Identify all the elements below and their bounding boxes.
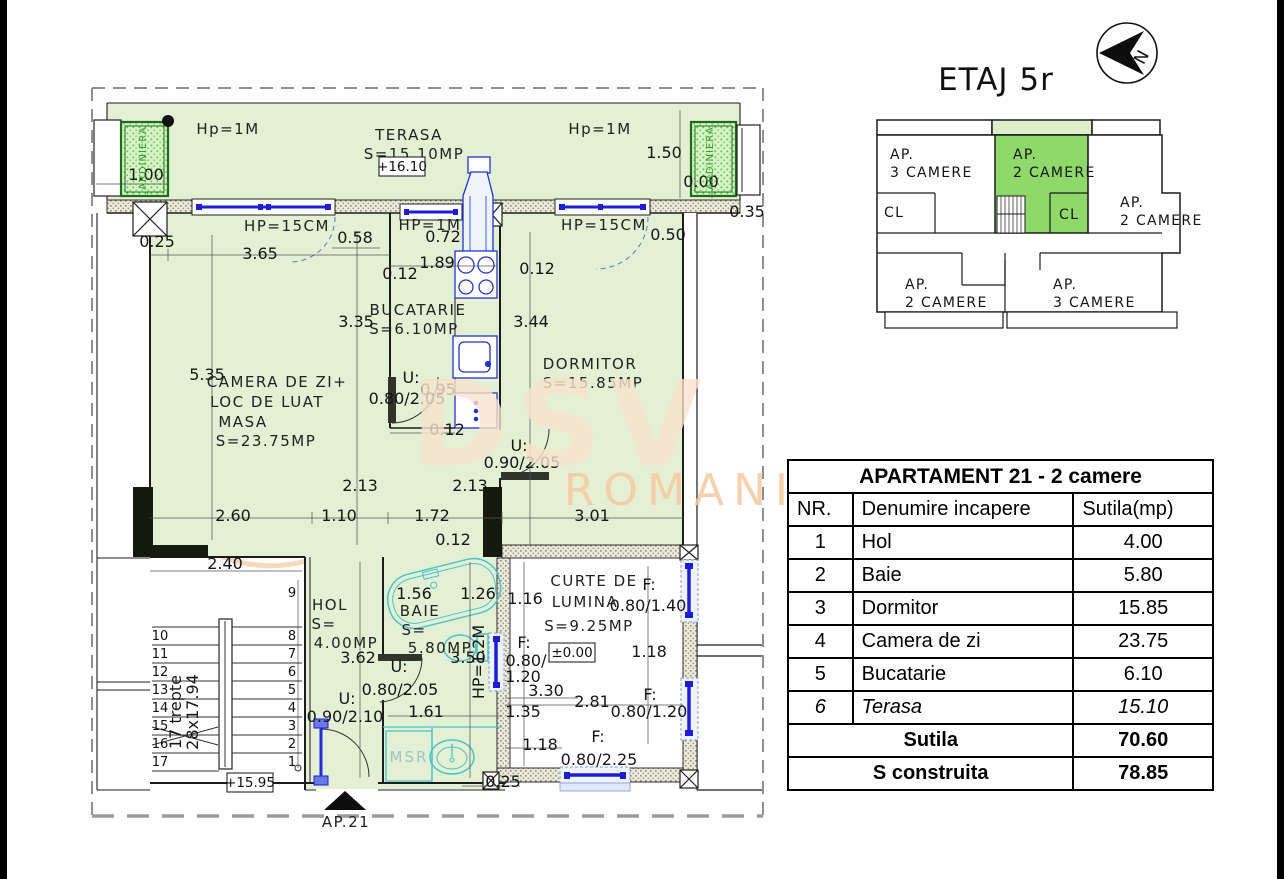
plan-annotation: 2.60: [215, 506, 251, 525]
table-cell: 3: [788, 592, 853, 625]
plan-annotation: U:: [390, 657, 407, 676]
plan-annotation: S=: [401, 621, 426, 639]
key-plan-label: 3 CAMERE: [1053, 295, 1136, 311]
plan-annotation: 2.81: [574, 692, 610, 711]
plan-annotation: AP.21: [322, 813, 370, 831]
stair-step-number: 6: [288, 665, 296, 680]
table-cell: 4.00: [1073, 526, 1213, 559]
table-cell: 6.10: [1073, 658, 1213, 691]
window-bath-lightwell: [489, 633, 504, 691]
table-summary-row: Sutila70.60: [788, 724, 1213, 757]
plan-annotation: HOL: [312, 596, 348, 614]
key-plan-label: 2 CAMERE: [905, 295, 988, 311]
plan-annotation: 0.80/1.20: [611, 702, 688, 721]
key-plan-label: 2 CAMERE: [1120, 213, 1203, 229]
table-row: 4Camera de zi23.75: [788, 625, 1213, 658]
window-lightwell-bottom: [560, 767, 630, 791]
plan-annotation: 0.80/1.40: [610, 596, 687, 615]
plan-annotation: F:: [591, 727, 604, 746]
col-header-area: Sutila(mp): [1073, 493, 1213, 526]
vent-shaft: [463, 157, 493, 252]
table-row: 6Terasa15.10: [788, 691, 1213, 724]
table-cell: 70.60: [1073, 724, 1213, 757]
plan-annotation: 1.72: [414, 506, 450, 525]
stair-step-number: 4: [288, 701, 296, 716]
table-cell: 6: [788, 691, 853, 724]
stair-step-number: 12: [152, 665, 169, 680]
left-edge-bar: [0, 0, 7, 879]
col-header-name: Denumire incapere: [853, 493, 1074, 526]
right-edge-bar: [1277, 0, 1284, 879]
plan-annotation: 1.16: [507, 589, 543, 608]
key-plan-label: AP.: [1053, 277, 1077, 293]
plan-annotation: CAMERA DE ZI+: [207, 373, 348, 391]
entrance-arrow: [324, 791, 366, 810]
stair-step-number: 14: [152, 701, 169, 716]
table-cell: 23.75: [1073, 625, 1213, 658]
table-cell: Baie: [853, 559, 1074, 592]
table-row: 1Hol4.00: [788, 526, 1213, 559]
key-plan-label: AP.: [1120, 195, 1144, 211]
plan-annotation: 0.50: [650, 225, 686, 244]
stair-step-number: 11: [152, 647, 169, 662]
key-plan-label: AP.: [890, 147, 914, 163]
table-title: APARTAMENT 21 - 2 camere: [788, 460, 1213, 493]
north-arrow-icon: N: [1097, 23, 1157, 83]
table-cell: Camera de zi: [853, 625, 1074, 658]
table-cell: Sutila: [788, 724, 1073, 757]
table-cell: 15.85: [1073, 592, 1213, 625]
plan-annotation: 0.58: [337, 228, 373, 247]
plan-annotation: 0.90/2.10: [307, 707, 384, 726]
plan-annotation: TERASA: [374, 126, 443, 144]
plan-annotation: 0.80/2.25: [561, 750, 638, 769]
plan-annotation: 28x17.94: [183, 674, 202, 750]
plan-annotation: 0.80/2.05: [362, 680, 439, 699]
plan-annotation: 1.50: [646, 143, 682, 162]
table-summary-row: S construita78.85: [788, 757, 1213, 790]
plan-annotation: Hp=1M: [196, 120, 259, 138]
plan-annotation: JARDINIERA: [705, 126, 716, 194]
stair-step-number: 10: [152, 629, 169, 644]
stair-step-number: 2: [288, 737, 296, 752]
table-cell: Bucatarie: [853, 658, 1074, 691]
plan-annotation: S=: [311, 615, 336, 633]
table-cell: Dormitor: [853, 592, 1074, 625]
table-cell: 2: [788, 559, 853, 592]
level-value: +15.95: [225, 775, 275, 791]
stove: [455, 251, 497, 298]
plan-annotation: MASA: [218, 413, 267, 431]
bath-sink: [430, 740, 474, 774]
stair-step-number: 5: [288, 683, 296, 698]
table-row: 5Bucatarie6.10: [788, 658, 1213, 691]
plan-annotation: 2.13: [342, 476, 378, 495]
key-plan-terrace-strip: [992, 120, 1092, 135]
stair-step-number: 13: [152, 683, 169, 698]
key-plan-label: AP.: [905, 277, 929, 293]
stair-step-number: 8: [288, 629, 296, 644]
table-header-row: NR. Denumire incapere Sutila(mp): [788, 493, 1213, 526]
plan-annotation: F:: [517, 633, 530, 652]
key-plan-stairs: [997, 196, 1025, 233]
key-plan-label: CL: [884, 205, 904, 221]
table-cell: Hol: [853, 526, 1074, 559]
plan-annotation: 1.26: [460, 584, 496, 603]
plan-annotation: 1.35: [505, 702, 541, 721]
table-cell: S construita: [788, 757, 1073, 790]
plan-annotation: LOC DE LUAT: [210, 393, 324, 411]
table-row: 2Baie5.80: [788, 559, 1213, 592]
col-header-nr: NR.: [788, 493, 853, 526]
plan-annotation: U:: [338, 689, 355, 708]
plan-annotation: F:: [642, 575, 655, 594]
area-table: APARTAMENT 21 - 2 camere NR. Denumire in…: [787, 459, 1214, 791]
plan-annotation: 3.62: [340, 648, 376, 667]
plan-annotation: 0.12: [435, 530, 471, 549]
plan-annotation: 3.30: [528, 681, 564, 700]
plan-annotation: HP=15CM: [244, 217, 330, 235]
level-value: +16.10: [377, 159, 427, 175]
table-cell: 5: [788, 658, 853, 691]
key-plan-label: CL: [1059, 207, 1079, 223]
plan-annotation: 1.89: [419, 253, 455, 272]
plan-annotation: 1.18: [631, 642, 667, 661]
plan-annotation: JARDINIERA: [138, 126, 149, 194]
plan-annotation: 3.44: [513, 312, 549, 331]
key-plan-label: 3 CAMERE: [890, 165, 973, 181]
plan-annotation: HP=1.2M: [469, 625, 488, 699]
stair-step-number: 16: [152, 737, 169, 752]
floor-title: ETAJ 5r: [938, 62, 1054, 98]
plan-annotation: 1.56: [396, 584, 432, 603]
plan-annotation: 1.10: [321, 506, 357, 525]
table-cell: 4: [788, 625, 853, 658]
table-cell: 1: [788, 526, 853, 559]
stair-step-number: 15: [152, 719, 169, 734]
plan-annotation: 0.12: [519, 259, 555, 278]
plan-annotation: CURTE DE: [550, 572, 637, 590]
plan-annotation: 0.25: [485, 772, 521, 791]
table-cell: 78.85: [1073, 757, 1213, 790]
level-value: ±0.00: [551, 645, 592, 661]
plan-annotation: 0.25: [139, 232, 175, 251]
stair-step-number: 7: [288, 647, 296, 662]
plan-annotation: 1.18: [522, 735, 558, 754]
plan-annotation: S=6.10MP: [369, 320, 458, 338]
plan-annotation: 1.61: [408, 702, 444, 721]
plan-annotation: 0.35: [729, 202, 765, 221]
plan-annotation: 3.65: [242, 244, 278, 263]
floor-plan-sheet: N ETAJ 5r Hp=1MTERASAS=15.10MPHp=1M1.001…: [0, 0, 1284, 879]
plan-annotation: S=9.25MP: [544, 617, 633, 635]
stair-step-number: 3: [288, 719, 296, 734]
plan-annotation: S=23.75MP: [216, 432, 317, 450]
plan-annotation: 0.12: [382, 264, 418, 283]
plan-annotation: MSR: [390, 748, 429, 766]
stair-step-number: 17: [152, 755, 169, 770]
key-plan-label: 2 CAMERE: [1013, 165, 1096, 181]
plan-annotation: 3.35: [338, 312, 374, 331]
plan-annotation: BAIE: [400, 602, 440, 620]
plan-annotation: 2.40: [207, 554, 243, 573]
plan-annotation: LUMINA: [552, 593, 618, 611]
plan-annotation: BUCATARIE: [370, 301, 467, 319]
plan-annotation: HP=15CM: [561, 216, 647, 234]
stair-step-number: 9: [288, 586, 296, 601]
table-cell: 5.80: [1073, 559, 1213, 592]
stair-step-number: 1: [288, 755, 296, 770]
table-row: 3Dormitor15.85: [788, 592, 1213, 625]
table-cell: 15.10: [1073, 691, 1213, 724]
table-cell: Terasa: [853, 691, 1074, 724]
key-plan-label: AP.: [1013, 147, 1037, 163]
plan-annotation: Hp=1M: [568, 120, 631, 138]
plan-annotation: 0.72: [425, 227, 461, 246]
